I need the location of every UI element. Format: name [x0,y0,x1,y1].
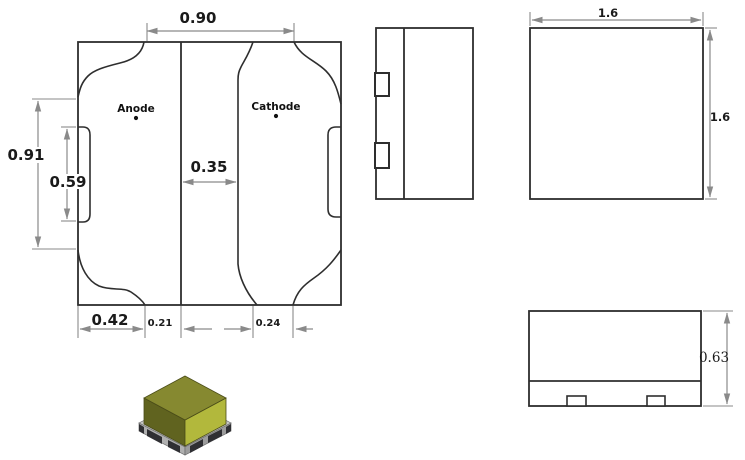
dim-offset-left-label: 0.21 [148,318,173,329]
front-view: 0.63 [529,311,733,406]
pad-layout-view: 0.90 0.91 0.59 0.35 0.42 0.21 0.24 Anode… [4,9,341,338]
cathode-marker-dot [274,114,278,118]
top-view-outline [530,28,703,199]
anode-pad-outline [78,42,145,305]
side-view-terminal-lower [375,143,389,168]
dimension-lines [532,20,710,197]
side-view-outline [376,28,473,199]
dim-height-label: 1.6 [710,110,730,124]
cathode-pad-outline [238,42,341,305]
drawing-svg: 0.90 0.91 0.59 0.35 0.42 0.21 0.24 Anode… [0,0,745,460]
side-view-terminal-upper [375,73,389,96]
dim-offset-right-label: 0.24 [256,318,281,329]
extension-lines [530,12,717,199]
dim-center-gap-label: 0.35 [190,158,227,176]
side-view [375,28,473,199]
cathode-label: Cathode [251,101,300,113]
front-view-outline [529,311,701,406]
front-view-terminal-left [567,396,586,406]
dim-thickness-label: 0.63 [699,350,729,366]
anode-marker-dot [134,116,138,120]
dim-pad-width-label: 0.42 [91,311,128,329]
dim-overall-height-label: 0.91 [7,146,44,164]
dim-pad-span-label: 0.90 [179,9,216,27]
anode-label: Anode [117,103,154,115]
dim-notch-height-label: 0.59 [49,173,86,191]
top-view: 1.6 1.6 [530,6,730,199]
front-view-terminal-right [647,396,665,406]
dim-width-label: 1.6 [598,6,618,20]
chip-3d-render [139,376,231,455]
led-package-dimension-drawing: 0.90 0.91 0.59 0.35 0.42 0.21 0.24 Anode… [0,0,745,460]
